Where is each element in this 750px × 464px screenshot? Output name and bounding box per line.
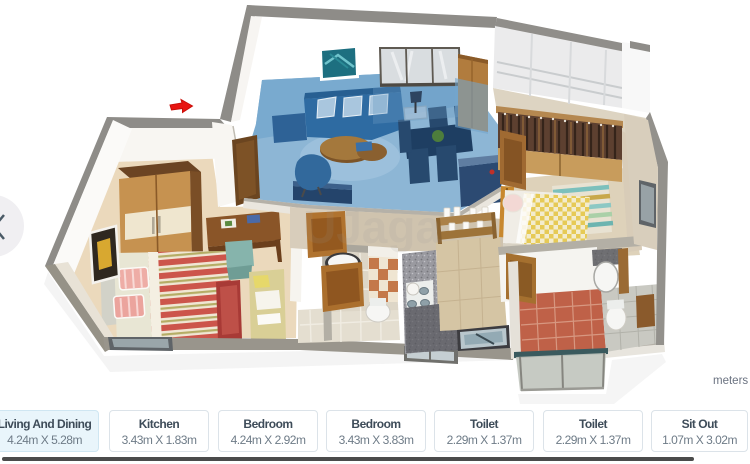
- svg-text:UJaga: UJaga: [303, 201, 441, 253]
